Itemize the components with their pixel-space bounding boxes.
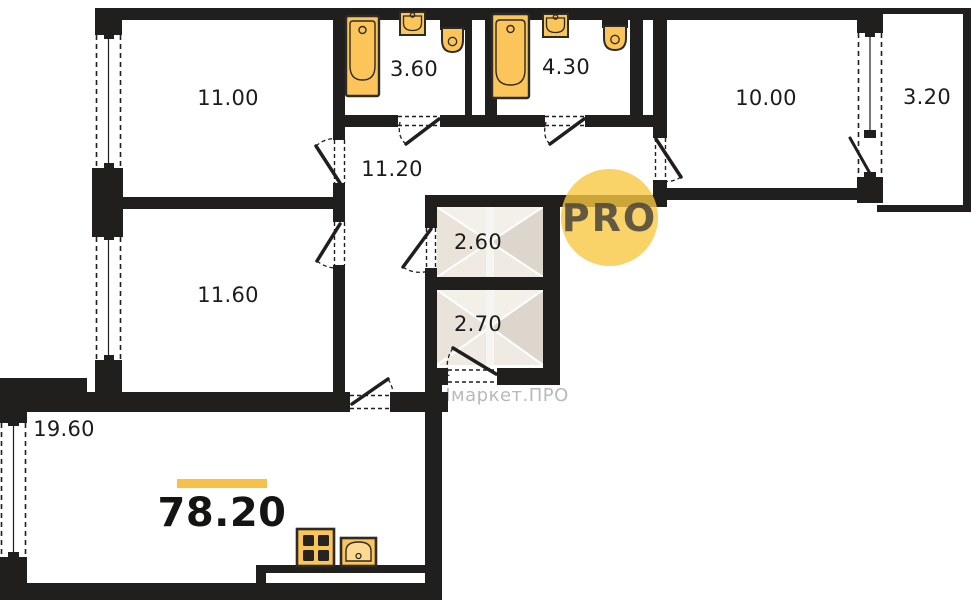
toilet-icon bbox=[442, 28, 463, 52]
wall-segment bbox=[585, 115, 653, 127]
door bbox=[398, 117, 440, 145]
wall-segment bbox=[87, 392, 350, 412]
wall-segment bbox=[425, 368, 448, 385]
floor-plan-drawing bbox=[0, 0, 979, 600]
wall-segment bbox=[333, 13, 345, 140]
wall-segment bbox=[256, 565, 266, 600]
floor-plan: Нмаркет.ПРО bbox=[0, 0, 979, 600]
door bbox=[316, 139, 345, 183]
door bbox=[350, 379, 393, 409]
wall-segment bbox=[877, 205, 971, 212]
room-area-label: 19.60 bbox=[33, 417, 95, 441]
wall-segment bbox=[653, 188, 883, 200]
wall-segment bbox=[630, 13, 643, 127]
total-area-label: 78.20 bbox=[157, 490, 286, 536]
wall-segment bbox=[963, 8, 971, 212]
wall-segment bbox=[857, 8, 883, 33]
wall-segment bbox=[857, 177, 883, 203]
wall-segment bbox=[95, 197, 345, 209]
wall-segment bbox=[465, 13, 472, 127]
wall-segment bbox=[0, 583, 442, 600]
sink-icon bbox=[400, 12, 425, 35]
room-area-label: 3.20 bbox=[903, 85, 951, 109]
door bbox=[317, 222, 345, 268]
door bbox=[545, 117, 585, 145]
bathtub-icon bbox=[492, 14, 529, 98]
room-area-label: 3.60 bbox=[390, 57, 438, 81]
wall-segment bbox=[653, 8, 667, 138]
brand-logo-badge: PRO bbox=[561, 169, 658, 266]
wall-segment bbox=[440, 115, 545, 127]
window bbox=[2, 423, 26, 557]
wall-segment bbox=[883, 8, 971, 14]
door bbox=[403, 228, 436, 272]
wall-segment bbox=[95, 8, 122, 35]
wall-segment bbox=[0, 378, 87, 412]
room-area-label: 11.20 bbox=[361, 157, 423, 181]
total-area-accent-bar bbox=[177, 479, 267, 488]
wall-segment bbox=[333, 183, 345, 222]
wall-segment bbox=[497, 368, 543, 385]
room-area-label: 4.30 bbox=[542, 55, 590, 79]
brand-logo-text: PRO bbox=[562, 196, 657, 240]
room-area-label: 2.70 bbox=[454, 312, 502, 336]
balcony-door bbox=[850, 138, 872, 177]
wall-segment bbox=[437, 277, 543, 290]
window bbox=[97, 237, 121, 360]
wall-segment bbox=[425, 268, 437, 385]
room-area-label: 11.60 bbox=[197, 283, 259, 307]
room-area-label: 11.00 bbox=[197, 86, 259, 110]
sink-icon bbox=[543, 14, 568, 37]
wall-segment bbox=[425, 385, 442, 600]
stove-icon bbox=[297, 529, 334, 566]
wall-segment bbox=[543, 195, 560, 385]
toilet-icon bbox=[604, 26, 626, 50]
wall-segment bbox=[333, 265, 345, 412]
window bbox=[97, 35, 121, 168]
wall-segment bbox=[345, 115, 398, 127]
room-area-label: 10.00 bbox=[735, 86, 797, 110]
room-area-label: 2.60 bbox=[454, 230, 502, 254]
kitchen-sink-icon bbox=[341, 538, 376, 566]
door bbox=[656, 138, 682, 182]
wall-segment bbox=[425, 195, 437, 228]
bathtub-icon bbox=[346, 16, 379, 96]
